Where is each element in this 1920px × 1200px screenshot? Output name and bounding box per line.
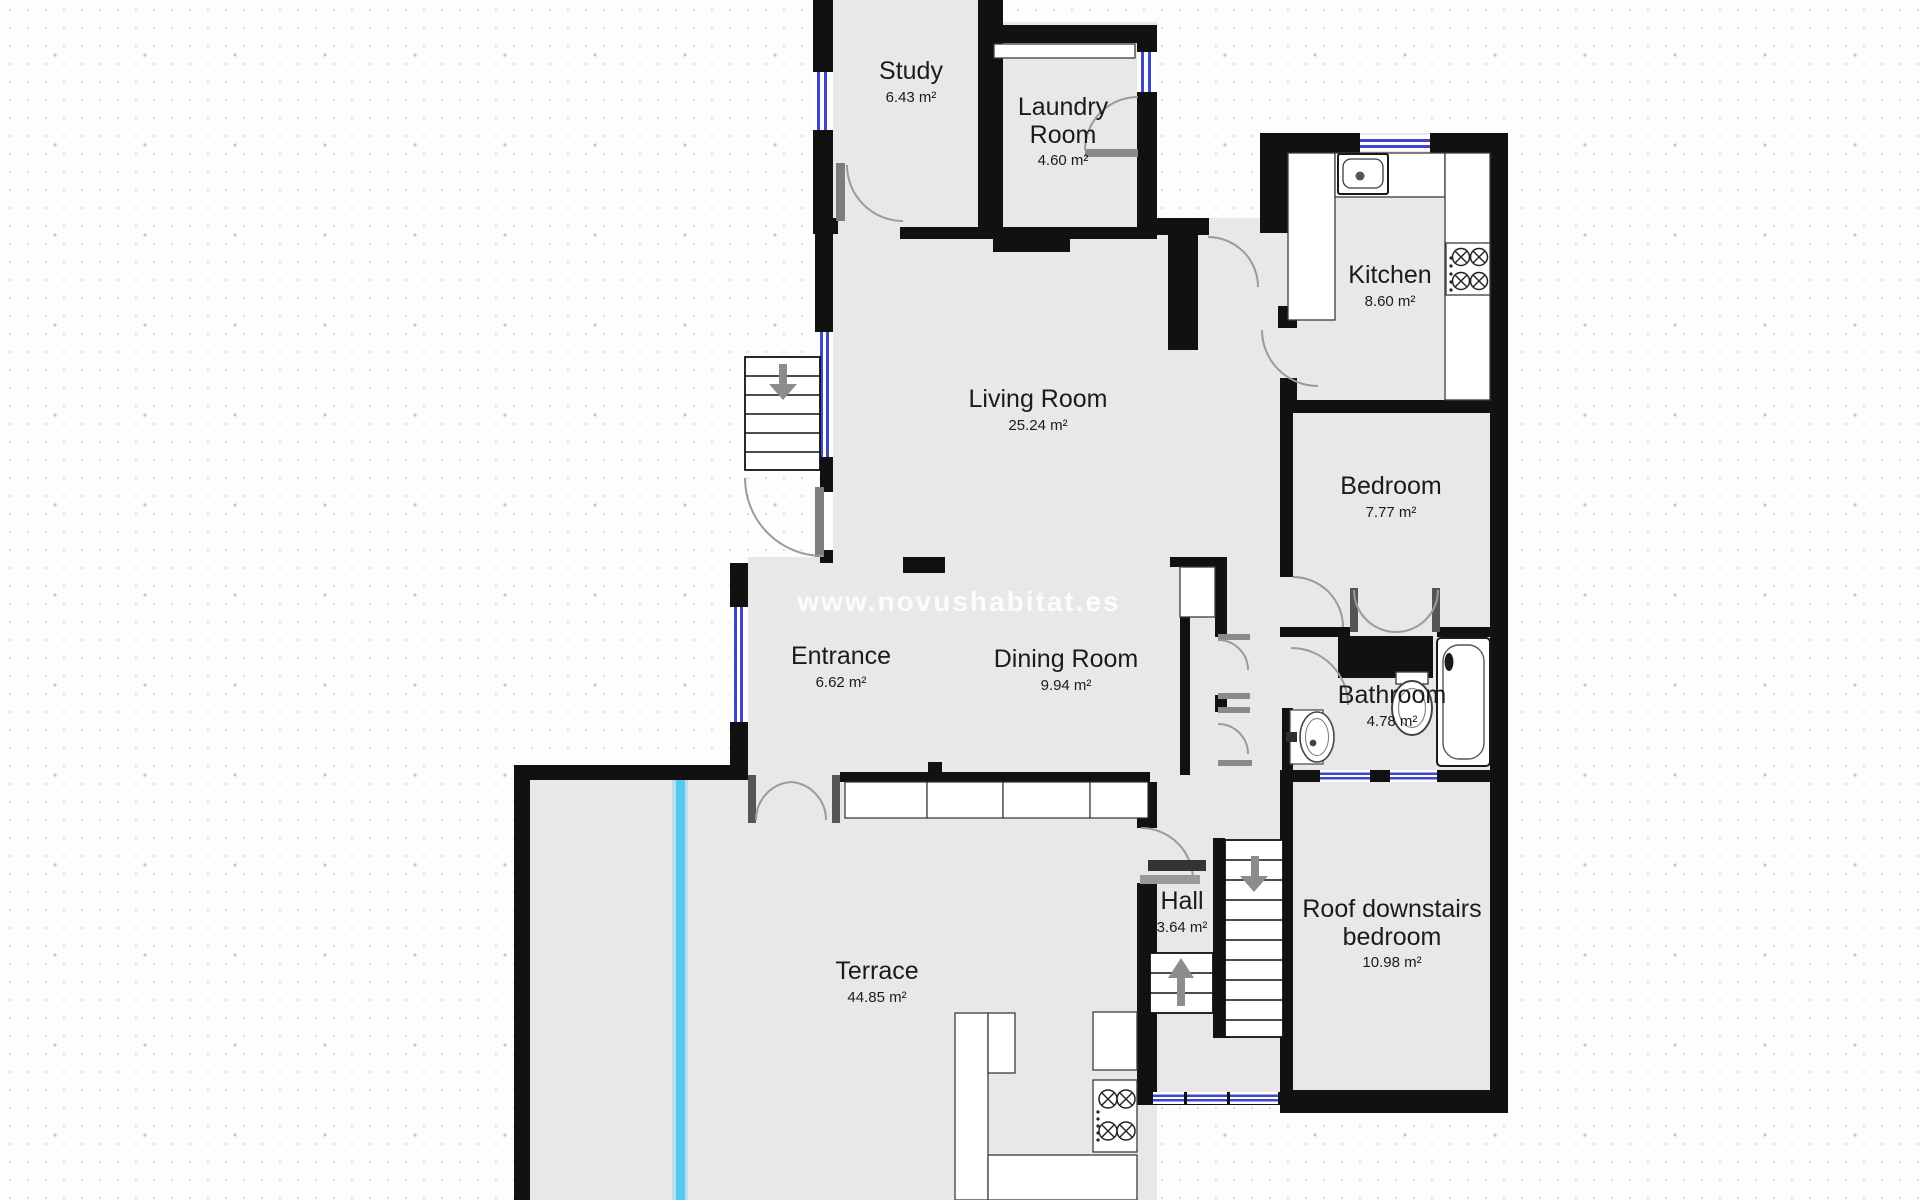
glass-panel xyxy=(845,782,927,818)
room-label-roof-bedroom: Roof downstairs bedroom 10.98 m² xyxy=(1302,896,1481,972)
room-name: Kitchen xyxy=(1348,262,1431,290)
glass-panel xyxy=(1090,782,1148,818)
wall-segment xyxy=(813,130,833,232)
room-name: Roof downstairs xyxy=(1302,896,1481,924)
window-hall-b xyxy=(1187,1092,1227,1104)
room-name: Laundry xyxy=(1018,94,1108,122)
water-supply-line xyxy=(672,778,688,1200)
outdoor-stove-icon xyxy=(1093,1080,1137,1152)
stove-icon xyxy=(1446,243,1490,295)
window-laundry-right xyxy=(1137,52,1157,92)
door-jamb xyxy=(832,775,840,823)
wall-segment xyxy=(1137,92,1157,237)
door-leaf xyxy=(1140,875,1200,884)
wall-segment xyxy=(900,227,1157,239)
wall-segment xyxy=(1215,557,1227,637)
wall-segment xyxy=(1280,627,1350,637)
room-label-kitchen: Kitchen 8.60 m² xyxy=(1348,262,1431,310)
kitchen-counter xyxy=(1288,153,1335,320)
wall-segment xyxy=(1280,1090,1508,1113)
room-area: 4.78 m² xyxy=(1367,714,1418,731)
wall-segment xyxy=(514,765,530,1200)
room-label-dining: Dining Room 9.94 m² xyxy=(994,646,1139,694)
staircase-main xyxy=(1225,840,1283,1037)
wall-segment xyxy=(730,563,748,607)
wall-segment xyxy=(820,457,833,492)
wall-segment xyxy=(1180,617,1190,775)
closet xyxy=(1180,567,1215,617)
room-label-hall: Hall 3.64 m² xyxy=(1157,888,1208,936)
room-area: 6.62 m² xyxy=(816,675,867,692)
room-area: 6.43 m² xyxy=(886,90,937,107)
room-name: Living Room xyxy=(969,386,1108,414)
wall-segment xyxy=(1437,627,1493,637)
room-name: Bedroom xyxy=(1340,473,1441,501)
floor-plan-canvas: www.novushabitat.es Study 6.43 m² Laundr… xyxy=(0,0,1920,1200)
wall-segment xyxy=(1280,770,1320,782)
wall-segment xyxy=(1168,235,1198,350)
room-area: 10.98 m² xyxy=(1362,955,1421,972)
wall-segment xyxy=(928,762,942,772)
kitchen-sink-icon xyxy=(1338,154,1388,194)
wall-segment xyxy=(1490,133,1508,1095)
wall-segment xyxy=(903,557,945,573)
room-label-bathroom: Bathroom 4.78 m² xyxy=(1338,682,1446,730)
glazed-window-band xyxy=(845,782,1148,818)
door-leaf xyxy=(1148,860,1206,871)
room-label-terrace: Terrace 44.85 m² xyxy=(835,958,918,1006)
window-study-left xyxy=(813,72,833,130)
staircase-exterior xyxy=(745,357,820,470)
door-swing-arc xyxy=(745,478,823,556)
room-label-laundry: Laundry Room 4.60 m² xyxy=(1018,94,1108,170)
window-hall-c xyxy=(1230,1092,1278,1104)
glass-panel xyxy=(1003,782,1090,818)
wall-segment xyxy=(1280,400,1492,413)
wall-segment xyxy=(815,227,833,332)
wall-segment xyxy=(1170,557,1220,567)
door-sill xyxy=(1218,707,1250,713)
room-name: Study xyxy=(879,58,943,86)
wall-segment xyxy=(1003,25,1153,43)
laundry-counter xyxy=(994,44,1135,58)
wall-segment xyxy=(1370,770,1390,782)
room-name: Hall xyxy=(1160,888,1203,916)
room-area: 3.64 m² xyxy=(1157,920,1208,937)
wall-segment xyxy=(978,0,1003,232)
room-area: 9.94 m² xyxy=(1041,678,1092,695)
room-name: Terrace xyxy=(835,958,918,986)
watermark: www.novushabitat.es xyxy=(797,586,1120,618)
counter xyxy=(1093,1012,1137,1070)
wall-segment xyxy=(1437,770,1492,782)
room-name: Dining Room xyxy=(994,646,1139,674)
door-jamb xyxy=(748,775,756,823)
window-entrance-left xyxy=(730,607,748,722)
glass-panel xyxy=(927,782,1003,818)
door-leaf xyxy=(836,163,845,221)
wall-segment xyxy=(1152,218,1209,235)
room-name: Bathroom xyxy=(1338,682,1446,710)
room-label-living: Living Room 25.24 m² xyxy=(969,386,1108,434)
wall-segment xyxy=(993,239,1070,252)
door-sill xyxy=(1218,634,1250,640)
wall-segment xyxy=(813,0,833,72)
counter xyxy=(988,1155,1137,1200)
wall-segment xyxy=(1137,25,1157,52)
room-area: 4.60 m² xyxy=(1038,153,1089,170)
room-label-entrance: Entrance 6.62 m² xyxy=(791,643,891,691)
door-sill xyxy=(1218,760,1252,766)
window-kitchen-top xyxy=(1360,135,1430,151)
bathroom-sink-icon xyxy=(1286,710,1334,764)
wall-segment xyxy=(840,772,1150,782)
window-bathroom-a xyxy=(1320,770,1370,782)
door-front xyxy=(745,478,824,557)
wall-segment xyxy=(1213,838,1225,1038)
wall-segment xyxy=(514,765,748,780)
wall-segment xyxy=(1270,133,1360,153)
room-area: 8.60 m² xyxy=(1365,294,1416,311)
door-leaf xyxy=(815,487,824,557)
room-label-bedroom: Bedroom 7.77 m² xyxy=(1340,473,1441,521)
room-area: 7.77 m² xyxy=(1366,505,1417,522)
room-label-study: Study 6.43 m² xyxy=(879,58,943,106)
room-name: Entrance xyxy=(791,643,891,671)
wall-segment xyxy=(1280,413,1293,577)
room-name: bedroom xyxy=(1343,924,1442,952)
room-name: Room xyxy=(1030,122,1097,150)
room-area: 25.24 m² xyxy=(1008,418,1067,435)
window-hall-a xyxy=(1153,1092,1184,1104)
window-bathroom-b xyxy=(1390,770,1437,782)
door-sill xyxy=(1218,693,1250,699)
counter xyxy=(988,1013,1015,1073)
counter xyxy=(955,1013,988,1200)
staircase-lower xyxy=(1150,953,1213,1013)
room-area: 44.85 m² xyxy=(847,990,906,1007)
